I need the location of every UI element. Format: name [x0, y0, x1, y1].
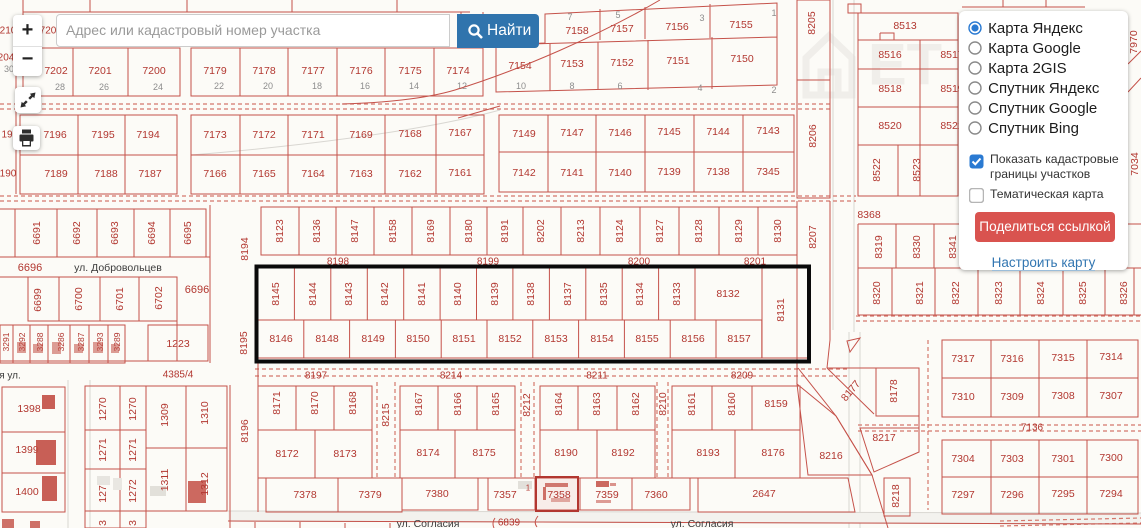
svg-text:8147: 8147: [349, 219, 361, 243]
svg-text:8155: 8155: [635, 333, 659, 345]
svg-text:7140: 7140: [608, 167, 632, 179]
svg-text:8175: 8175: [472, 447, 496, 459]
svg-text:7358: 7358: [547, 489, 571, 501]
svg-text:8140: 8140: [452, 282, 464, 306]
svg-text:7172: 7172: [252, 129, 276, 141]
svg-text:14: 14: [409, 81, 419, 91]
svg-text:8151: 8151: [452, 333, 476, 345]
svg-text:1312: 1312: [199, 472, 211, 496]
svg-text:7308: 7308: [1051, 390, 1075, 402]
svg-text:7143: 7143: [756, 125, 780, 137]
svg-text:8138: 8138: [525, 282, 537, 306]
svg-text:28: 28: [55, 82, 65, 92]
svg-text:8168: 8168: [347, 391, 359, 415]
svg-text:7144: 7144: [706, 126, 730, 138]
svg-text:7294: 7294: [1099, 488, 1123, 500]
svg-text:8324: 8324: [1035, 281, 1047, 305]
svg-text:8132: 8132: [716, 288, 740, 300]
svg-text:8194: 8194: [239, 237, 251, 261]
svg-text:7189: 7189: [44, 168, 68, 180]
svg-text:8322: 8322: [950, 281, 962, 305]
svg-text:7187: 7187: [138, 168, 162, 180]
svg-text:8156: 8156: [681, 333, 705, 345]
svg-text:8211: 8211: [586, 371, 608, 382]
svg-text:6691: 6691: [31, 221, 43, 245]
svg-text:7151: 7151: [666, 55, 690, 67]
svg-text:8178: 8178: [888, 379, 900, 403]
svg-text:8210: 8210: [657, 392, 669, 416]
svg-text:7345: 7345: [756, 166, 780, 178]
svg-text:7168: 7168: [398, 128, 422, 140]
svg-text:7164: 7164: [301, 168, 325, 180]
svg-text:7147: 7147: [560, 127, 584, 139]
svg-text:7194: 7194: [136, 129, 160, 141]
svg-text:1271: 1271: [97, 438, 109, 462]
svg-text:7165: 7165: [252, 168, 276, 180]
svg-text:8130: 8130: [772, 219, 784, 243]
svg-text:20: 20: [263, 81, 273, 91]
svg-text:1399: 1399: [15, 444, 39, 456]
svg-text:7171: 7171: [301, 129, 325, 141]
svg-text:8325: 8325: [1077, 281, 1089, 305]
svg-text:8218: 8218: [890, 484, 902, 508]
svg-text:3: 3: [97, 520, 109, 526]
svg-text:ул. Согласия: ул. Согласия: [671, 518, 734, 528]
svg-text:1270: 1270: [127, 397, 139, 421]
svg-text:8163: 8163: [591, 392, 603, 416]
svg-text:8139: 8139: [489, 282, 501, 306]
svg-text:7136: 7136: [1021, 423, 1044, 434]
svg-text:7139: 7139: [657, 166, 681, 178]
svg-text:8124: 8124: [614, 219, 626, 243]
svg-text:6700: 6700: [73, 287, 85, 311]
svg-text:7201: 7201: [88, 65, 112, 77]
svg-text:8158: 8158: [387, 219, 399, 243]
svg-text:7141: 7141: [560, 167, 584, 179]
svg-text:8169: 8169: [425, 219, 437, 243]
svg-text:8323: 8323: [993, 281, 1005, 305]
svg-text:8523: 8523: [911, 158, 923, 182]
svg-text:7378: 7378: [293, 489, 317, 501]
svg-text:22: 22: [214, 81, 224, 91]
svg-text:8162: 8162: [630, 392, 642, 416]
svg-text:8214: 8214: [440, 371, 463, 382]
svg-text:7309: 7309: [1000, 391, 1024, 403]
svg-text:7162: 7162: [398, 168, 422, 180]
svg-text:8166: 8166: [452, 392, 464, 416]
svg-text:7357: 7357: [493, 489, 517, 501]
svg-text:8170: 8170: [309, 391, 321, 415]
svg-text:7175: 7175: [398, 65, 422, 77]
svg-text:7161: 7161: [448, 167, 472, 179]
svg-text:7315: 7315: [1051, 352, 1075, 364]
svg-text:6702: 6702: [153, 286, 165, 310]
svg-text:7176: 7176: [349, 65, 373, 77]
svg-text:7200: 7200: [142, 65, 166, 77]
svg-text:6699: 6699: [32, 288, 44, 312]
svg-text:8145: 8145: [270, 282, 282, 306]
svg-text:16: 16: [360, 81, 370, 91]
svg-text:7179: 7179: [203, 65, 227, 77]
svg-text:6701: 6701: [114, 287, 126, 311]
svg-text:8161: 8161: [686, 392, 698, 416]
svg-text:8190: 8190: [554, 447, 578, 459]
svg-text:8172: 8172: [275, 448, 299, 460]
svg-text:2: 2: [771, 85, 776, 95]
svg-text:1: 1: [526, 484, 531, 493]
svg-text:ул. Добровольцев: ул. Добровольцев: [74, 262, 162, 274]
svg-text:10: 10: [516, 81, 526, 91]
svg-text:7188: 7188: [94, 168, 118, 180]
svg-text:7177: 7177: [301, 65, 325, 77]
svg-text:8133: 8133: [671, 282, 683, 306]
svg-text:6: 6: [617, 81, 622, 91]
svg-text:8129: 8129: [733, 219, 745, 243]
svg-text:4: 4: [697, 83, 702, 93]
svg-text:7178: 7178: [252, 65, 276, 77]
svg-text:8149: 8149: [361, 333, 385, 345]
svg-text:8128: 8128: [693, 219, 705, 243]
svg-text:8180: 8180: [463, 219, 475, 243]
svg-text:8157: 8157: [727, 333, 751, 345]
svg-text:8136: 8136: [311, 219, 323, 243]
svg-text:я ул.: я ул.: [0, 371, 21, 382]
svg-text:7296: 7296: [1000, 489, 1024, 501]
svg-text:1272: 1272: [127, 479, 139, 503]
svg-text:1311: 1311: [159, 469, 171, 492]
svg-text:ул. Согласия: ул. Согласия: [397, 518, 460, 528]
svg-text:7167: 7167: [448, 127, 472, 139]
svg-text:1271: 1271: [127, 438, 139, 462]
svg-text:1309: 1309: [159, 403, 171, 427]
svg-text:8217: 8217: [872, 432, 896, 444]
svg-text:8191: 8191: [499, 219, 511, 243]
svg-text:8131: 8131: [775, 298, 787, 322]
svg-text:8146: 8146: [269, 333, 293, 345]
svg-text:7317: 7317: [951, 353, 975, 365]
svg-text:7149: 7149: [512, 128, 536, 140]
svg-text:7314: 7314: [1099, 351, 1123, 363]
svg-text:8171: 8171: [271, 391, 283, 415]
svg-text:190: 190: [0, 169, 17, 180]
svg-text:7152: 7152: [610, 57, 634, 69]
svg-text:4385/4: 4385/4: [163, 370, 194, 381]
svg-text:7169: 7169: [349, 129, 373, 141]
svg-text:26: 26: [99, 82, 109, 92]
svg-text:7310: 7310: [951, 391, 975, 403]
svg-text:8202: 8202: [535, 219, 547, 243]
svg-text:7138: 7138: [706, 166, 730, 178]
svg-text:7153: 7153: [560, 58, 584, 70]
svg-text:6839: 6839: [498, 518, 521, 528]
svg-text:8192: 8192: [611, 447, 635, 459]
svg-text:8213: 8213: [575, 219, 587, 243]
svg-text:7202: 7202: [44, 65, 68, 77]
svg-text:8165: 8165: [490, 392, 502, 416]
svg-text:6693: 6693: [109, 221, 121, 245]
svg-text:8518: 8518: [878, 83, 902, 95]
svg-text:8522: 8522: [871, 158, 883, 182]
svg-text:7166: 7166: [203, 168, 227, 180]
svg-text:7970: 7970: [1128, 30, 1140, 54]
svg-text:7174: 7174: [446, 65, 470, 77]
svg-text:19: 19: [1, 130, 13, 141]
svg-text:2647: 2647: [752, 488, 776, 500]
svg-text:24: 24: [153, 82, 163, 92]
svg-text:7304: 7304: [951, 453, 975, 465]
svg-text:7142: 7142: [512, 167, 536, 179]
svg-text:8137: 8137: [562, 282, 574, 306]
svg-text:8148: 8148: [315, 333, 339, 345]
svg-text:8144: 8144: [307, 282, 319, 306]
svg-text:8212: 8212: [521, 393, 533, 417]
svg-text:8134: 8134: [634, 282, 646, 306]
svg-text:8154: 8154: [590, 333, 614, 345]
svg-text:8520: 8520: [878, 120, 902, 132]
svg-text:8174: 8174: [416, 447, 440, 459]
svg-text:7150: 7150: [730, 53, 754, 65]
svg-text:12: 12: [457, 81, 467, 91]
svg-text:8196: 8196: [239, 419, 251, 443]
svg-text:8368: 8368: [857, 209, 881, 221]
svg-text:6694: 6694: [146, 221, 158, 245]
svg-text:7360: 7360: [644, 489, 668, 501]
svg-text:8150: 8150: [406, 333, 430, 345]
svg-text:5: 5: [615, 10, 620, 20]
svg-text:1310: 1310: [199, 401, 211, 425]
svg-text:8193: 8193: [696, 447, 720, 459]
svg-text:8123: 8123: [274, 219, 286, 243]
svg-text:3: 3: [699, 13, 704, 23]
svg-text:7196: 7196: [43, 129, 67, 141]
svg-text:1223: 1223: [166, 338, 190, 350]
svg-text:8330: 8330: [911, 235, 923, 259]
svg-text:8209: 8209: [731, 371, 754, 382]
svg-text:7379: 7379: [358, 489, 382, 501]
svg-text:7173: 7173: [203, 129, 227, 141]
svg-text:8215: 8215: [380, 403, 392, 427]
svg-text:7301: 7301: [1051, 453, 1075, 465]
svg-text:8173: 8173: [333, 448, 357, 460]
svg-text:7195: 7195: [91, 129, 115, 141]
svg-text:1270: 1270: [97, 397, 109, 421]
svg-text:7297: 7297: [951, 489, 975, 501]
svg-text:8195: 8195: [238, 331, 250, 355]
svg-text:6692: 6692: [71, 221, 83, 245]
svg-text:3291: 3291: [1, 332, 11, 351]
svg-text:7156: 7156: [665, 21, 689, 33]
svg-text:8141: 8141: [416, 282, 428, 306]
svg-text:1: 1: [771, 8, 776, 18]
svg-text:6696: 6696: [185, 284, 209, 296]
svg-text:7307: 7307: [1099, 390, 1123, 402]
svg-text:6695: 6695: [182, 221, 194, 245]
svg-text:7380: 7380: [425, 488, 449, 500]
svg-text:8516: 8516: [878, 49, 902, 61]
svg-text:8142: 8142: [379, 282, 391, 306]
svg-text:8143: 8143: [343, 282, 355, 306]
svg-text:7295: 7295: [1051, 488, 1075, 500]
svg-text:8164: 8164: [553, 392, 565, 416]
svg-text:8160: 8160: [726, 392, 738, 416]
svg-text:7: 7: [567, 12, 572, 22]
svg-text:7145: 7145: [657, 126, 681, 138]
svg-text:720: 720: [40, 26, 57, 37]
svg-text:8197: 8197: [305, 371, 328, 382]
svg-text:8207: 8207: [807, 225, 819, 249]
svg-text:8513: 8513: [893, 20, 917, 32]
svg-text:8152: 8152: [498, 333, 522, 345]
svg-text:18: 18: [312, 81, 322, 91]
svg-text:8326: 8326: [1118, 281, 1130, 305]
svg-text:8319: 8319: [873, 235, 885, 259]
svg-text:1398: 1398: [17, 403, 41, 415]
svg-text:7300: 7300: [1099, 452, 1123, 464]
svg-text:3: 3: [127, 520, 139, 526]
svg-text:8: 8: [569, 81, 574, 91]
svg-text:7146: 7146: [608, 127, 632, 139]
svg-text:8135: 8135: [598, 282, 610, 306]
svg-text:8321: 8321: [914, 281, 926, 305]
svg-text:8205: 8205: [806, 11, 818, 35]
svg-text:8216: 8216: [819, 450, 843, 462]
svg-text:8159: 8159: [764, 398, 788, 410]
svg-text:7155: 7155: [729, 19, 753, 31]
svg-text:8176: 8176: [761, 447, 785, 459]
svg-text:7316: 7316: [1000, 353, 1024, 365]
svg-text:8153: 8153: [544, 333, 568, 345]
svg-text:7163: 7163: [349, 168, 373, 180]
svg-text:8341: 8341: [947, 235, 959, 259]
svg-text:7158: 7158: [565, 25, 589, 37]
svg-text:7303: 7303: [1000, 453, 1024, 465]
svg-text:6696: 6696: [18, 262, 42, 274]
svg-text:8127: 8127: [654, 219, 666, 243]
svg-text:8206: 8206: [807, 124, 819, 148]
svg-text:7359: 7359: [595, 489, 619, 501]
svg-text:1400: 1400: [15, 486, 39, 498]
svg-text:8320: 8320: [871, 281, 883, 305]
svg-text:8167: 8167: [413, 392, 425, 416]
